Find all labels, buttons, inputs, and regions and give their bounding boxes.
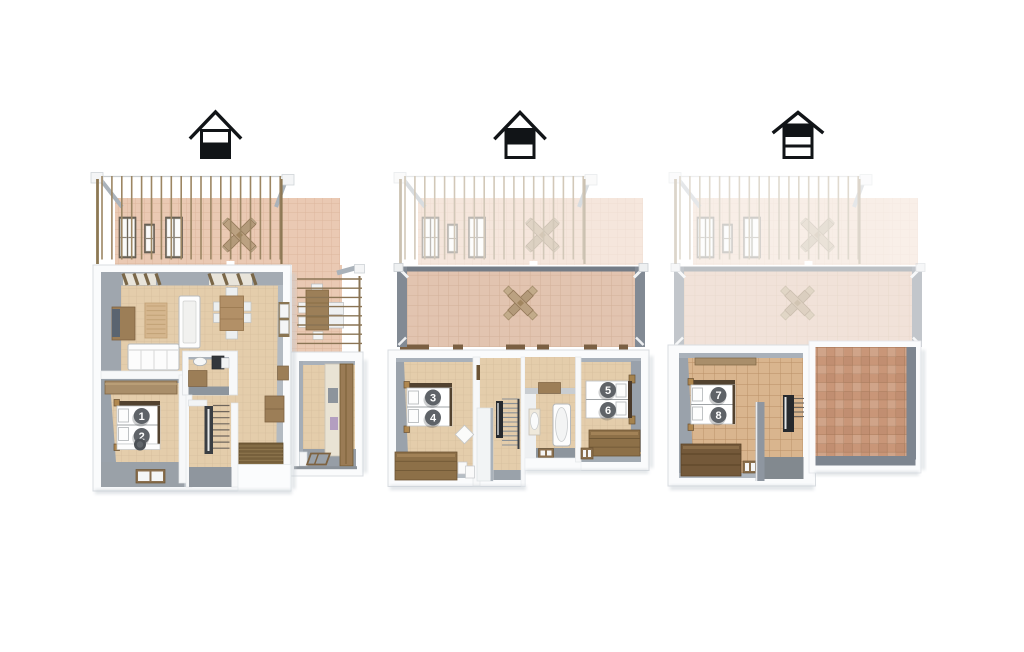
svg-text:1: 1 (139, 411, 145, 423)
svg-text:5: 5 (605, 385, 611, 397)
svg-text:3: 3 (430, 392, 436, 404)
svg-text:6: 6 (605, 405, 611, 417)
svg-text:4: 4 (430, 412, 437, 424)
svg-text:7: 7 (715, 390, 721, 402)
svg-text:8: 8 (715, 410, 721, 422)
